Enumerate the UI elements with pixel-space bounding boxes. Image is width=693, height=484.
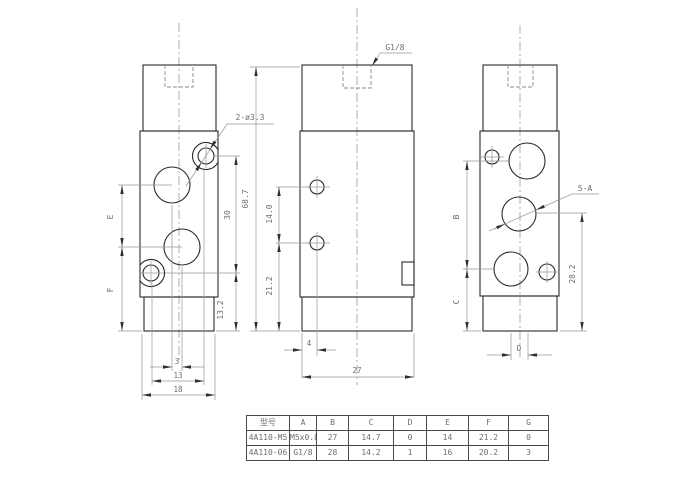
table-cell: G1/8 bbox=[290, 446, 317, 461]
table-cell: 28 bbox=[317, 446, 349, 461]
table-header-A: A bbox=[290, 416, 317, 431]
side-tab-outline bbox=[402, 262, 414, 285]
dim-text-68-7: 68.7 bbox=[241, 189, 250, 208]
table-cell: 4A110-M5 bbox=[247, 431, 290, 446]
port-circle-top bbox=[509, 143, 545, 179]
leader-arrow bbox=[210, 140, 216, 149]
port-circle-middle bbox=[502, 197, 536, 231]
table-cell: M5x0.8 bbox=[290, 431, 317, 446]
dim-text-C: C bbox=[452, 299, 461, 304]
callout-text-mount-holes: 2-ø3.3 bbox=[236, 113, 265, 122]
dim-text-B: B bbox=[452, 214, 461, 219]
dim-text-27: 27 bbox=[352, 366, 361, 375]
dim-text-13-2: 13.2 bbox=[216, 300, 225, 319]
table-header-E: E bbox=[427, 416, 469, 431]
callout-text-ports: 5-A bbox=[578, 184, 593, 193]
table-header-C: C bbox=[349, 416, 394, 431]
table-cell: 3 bbox=[509, 446, 549, 461]
valve-drawing-page: E F 30 13.2 3 13 18 2-ø3.3 bbox=[0, 0, 693, 484]
dim-text-E: E bbox=[106, 214, 115, 219]
table-cell: 21.2 bbox=[469, 431, 509, 446]
side-view: 5-A B C 28.2 D bbox=[452, 25, 599, 360]
table-cell: 0 bbox=[394, 431, 427, 446]
table-header-model: 型号 bbox=[247, 416, 290, 431]
table-header-G: G bbox=[509, 416, 549, 431]
table-cell: 0 bbox=[509, 431, 549, 446]
dim-text-13: 13 bbox=[173, 371, 182, 380]
table-header-B: B bbox=[317, 416, 349, 431]
callout-text-port-thread: G1/8 bbox=[385, 43, 404, 52]
valve-drawing-canvas: E F 30 13.2 3 13 18 2-ø3.3 bbox=[0, 0, 693, 484]
dim-text-14: 14.0 bbox=[265, 204, 274, 223]
dim-text-4: 4 bbox=[307, 339, 312, 348]
dim-text-3: 3 bbox=[175, 357, 180, 366]
leader-arrow bbox=[536, 205, 547, 210]
solenoid-cap-outline bbox=[143, 65, 216, 131]
table-header-D: D bbox=[394, 416, 427, 431]
dim-text-30: 30 bbox=[223, 210, 232, 220]
left-view: E F 30 13.2 3 13 18 2-ø3.3 bbox=[106, 23, 274, 400]
dim-text-D: D bbox=[517, 344, 522, 353]
table-cell: 14.7 bbox=[349, 431, 394, 446]
table-cell: 4A110-06 bbox=[247, 446, 290, 461]
dim-text-21-2: 21.2 bbox=[265, 276, 274, 295]
leader-arrow bbox=[372, 53, 380, 66]
leader-arrow bbox=[196, 163, 202, 172]
dim-text-18: 18 bbox=[173, 385, 183, 394]
leader-arrow bbox=[494, 224, 505, 229]
spec-table: 型号 A B C D E F G 4A110-M5 M5x0.8 27 14.7… bbox=[246, 415, 549, 461]
dim-text-28-2: 28.2 bbox=[568, 264, 577, 283]
table-cell: 20.2 bbox=[469, 446, 509, 461]
table-cell: 1 bbox=[394, 446, 427, 461]
hidden-port-outline bbox=[508, 65, 533, 87]
table-header-F: F bbox=[469, 416, 509, 431]
table-cell: 14 bbox=[427, 431, 469, 446]
dim-text-F: F bbox=[106, 287, 115, 292]
front-view: G1/8 68.7 14.0 21.2 4 27 bbox=[241, 8, 414, 385]
port-circle-bottom bbox=[494, 252, 528, 286]
table-cell: 14.2 bbox=[349, 446, 394, 461]
table-cell: 27 bbox=[317, 431, 349, 446]
table-cell: 16 bbox=[427, 446, 469, 461]
